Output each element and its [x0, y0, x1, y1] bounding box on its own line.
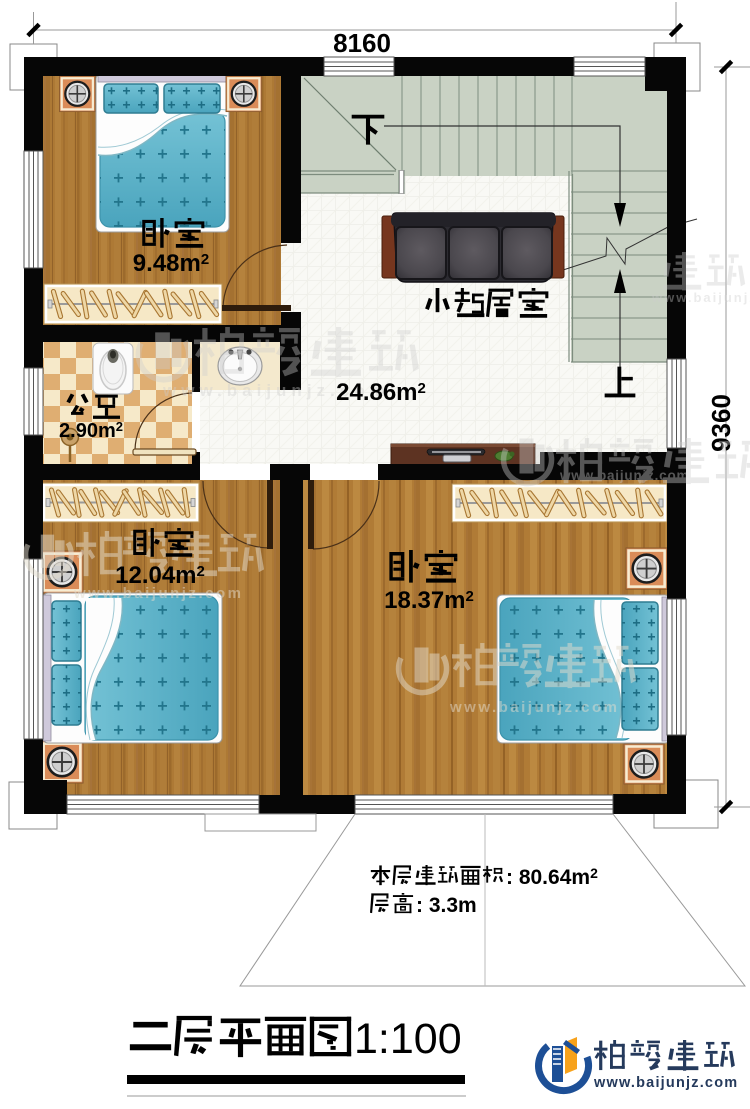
svg-text:www.baijunjz.com: www.baijunjz.com	[559, 468, 689, 483]
svg-text:24.86m2: 24.86m2	[336, 379, 426, 406]
svg-text:www.baijunjz.com: www.baijunjz.com	[651, 290, 750, 305]
svg-text:: 3.3m: : 3.3m	[416, 894, 477, 917]
svg-text:8160: 8160	[333, 28, 391, 58]
svg-text:1:100: 1:100	[354, 1015, 462, 1063]
svg-text:: 80.64m2: : 80.64m2	[506, 865, 598, 889]
svg-text:www.baijunjz.com: www.baijunjz.com	[449, 699, 619, 716]
svg-text:12.04m2: 12.04m2	[115, 562, 205, 589]
svg-text:18.37m2: 18.37m2	[384, 587, 474, 614]
svg-text:2.90m2: 2.90m2	[59, 419, 123, 442]
svg-text:www.baijunjz.com: www.baijunjz.com	[593, 1075, 738, 1091]
svg-text:9.48m2: 9.48m2	[133, 250, 209, 277]
